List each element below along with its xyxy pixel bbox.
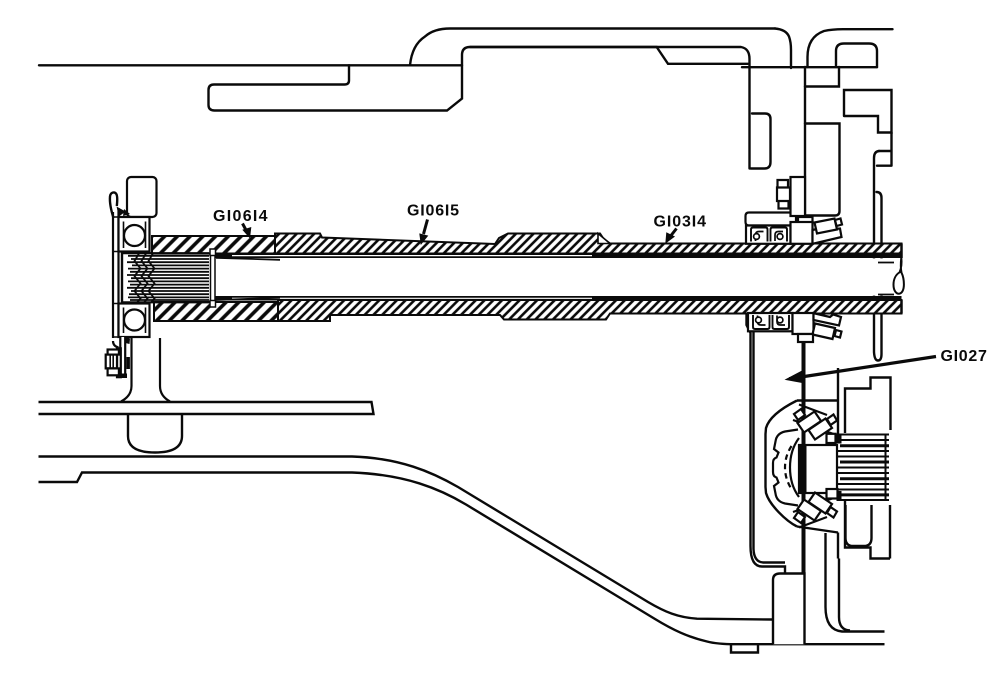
svg-text:GI06I5: GI06I5: [407, 203, 460, 220]
svg-text:GI03I4: GI03I4: [654, 214, 707, 231]
svg-text:GI027: GI027: [941, 348, 988, 365]
svg-text:GI06I4: GI06I4: [213, 208, 269, 225]
